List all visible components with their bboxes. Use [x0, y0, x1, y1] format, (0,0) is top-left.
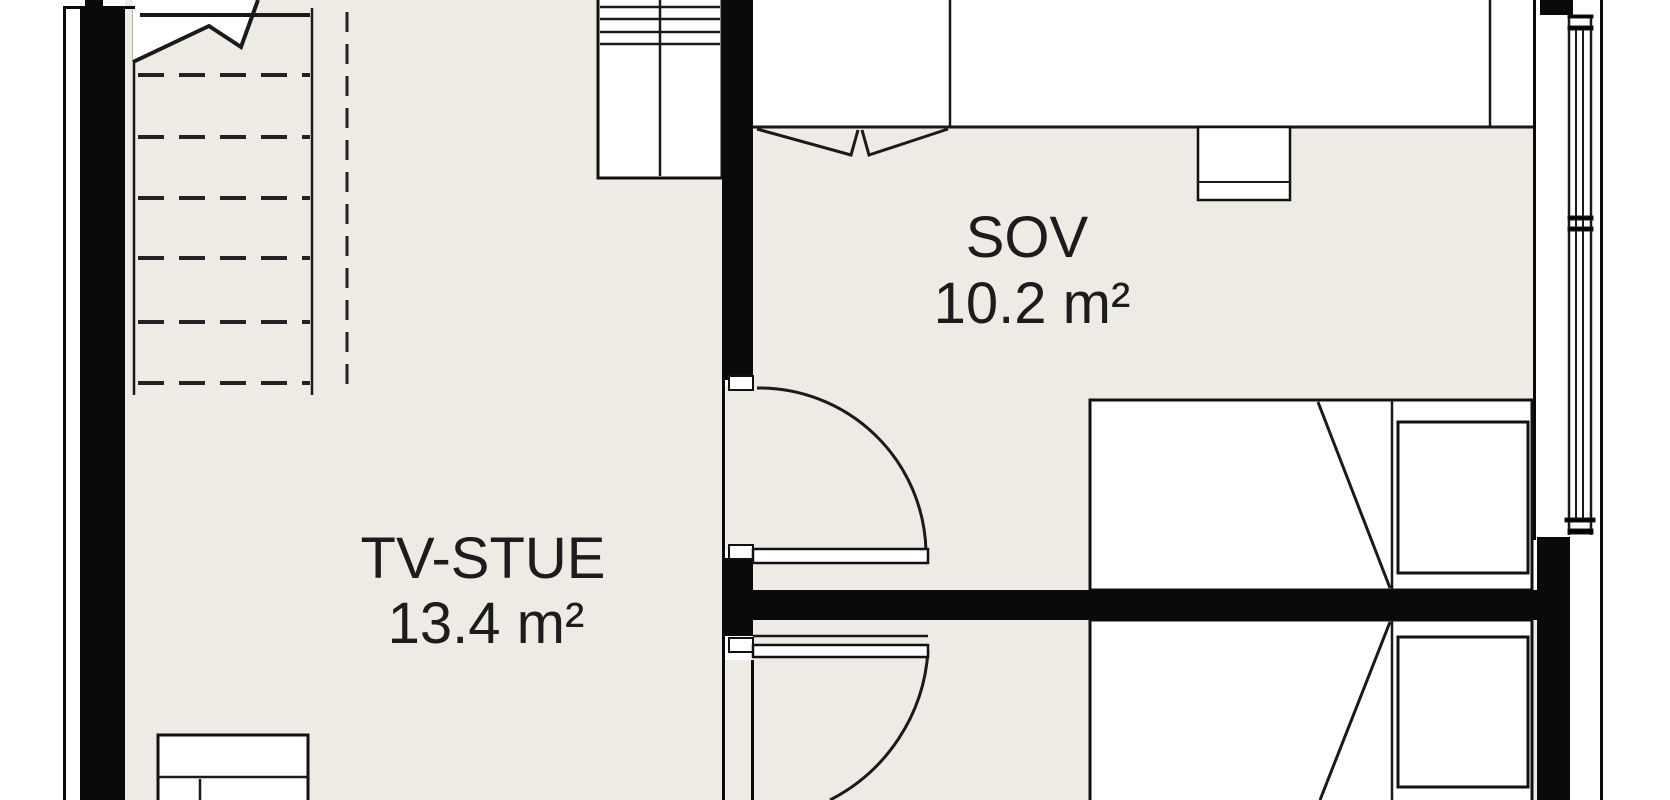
exterior-wall-right-header [1540, 0, 1573, 15]
floor-plan: SOV 10.2 m² TV-STUE 13.4 m² [0, 0, 1670, 800]
bed-pillow [1398, 637, 1528, 787]
sov-doorway-floor [722, 385, 754, 550]
sov-bed [1090, 400, 1532, 590]
door-jamb [729, 638, 753, 652]
tv-bench-body [158, 735, 308, 800]
window-sash-meeting [1568, 216, 1593, 220]
window-frame-tick [1568, 26, 1593, 30]
interior-wall-vertical-upper [725, 0, 753, 380]
exterior-wall-left-joint [85, 0, 103, 7]
interior-wall-horizontal [725, 590, 1570, 620]
exterior-wall-right-lower [1537, 537, 1570, 800]
window-sill-tick [1565, 518, 1595, 522]
room-area-tv-stue: 13.4 m² [388, 591, 585, 656]
dresser [1198, 127, 1290, 200]
lower-doorway-floor [722, 660, 754, 800]
wardrobe-body [753, 0, 1533, 127]
doorway-reveal-line [751, 660, 754, 800]
interior-wall-face-line [722, 0, 725, 800]
exterior-wall-left [80, 9, 125, 800]
room-label-tv-stue: TV-STUE [361, 526, 606, 591]
window [1565, 15, 1595, 535]
exterior-wall-right-outer-face [1600, 0, 1603, 800]
tv-bench [158, 735, 308, 800]
room-area-sov: 10.2 m² [934, 271, 1131, 336]
upper-stair-flight [598, 0, 722, 178]
window-sash-meeting [1568, 227, 1593, 231]
door-jamb [729, 545, 753, 559]
door-leaf [753, 645, 928, 657]
room-label-sov: SOV [966, 205, 1089, 270]
bed-pillow [1398, 422, 1528, 573]
door-jamb [729, 376, 753, 390]
door-leaf [753, 549, 928, 563]
exterior-wall-left-outer-face [63, 6, 66, 800]
lower-bed [1090, 620, 1532, 800]
exterior-wall-right-inner-face [1533, 0, 1536, 540]
dresser-body [1198, 127, 1290, 200]
window-sill-tick [1568, 529, 1593, 534]
window-frame-tick [1568, 15, 1593, 18]
floor-plan-svg: SOV 10.2 m² TV-STUE 13.4 m² [0, 0, 1670, 800]
